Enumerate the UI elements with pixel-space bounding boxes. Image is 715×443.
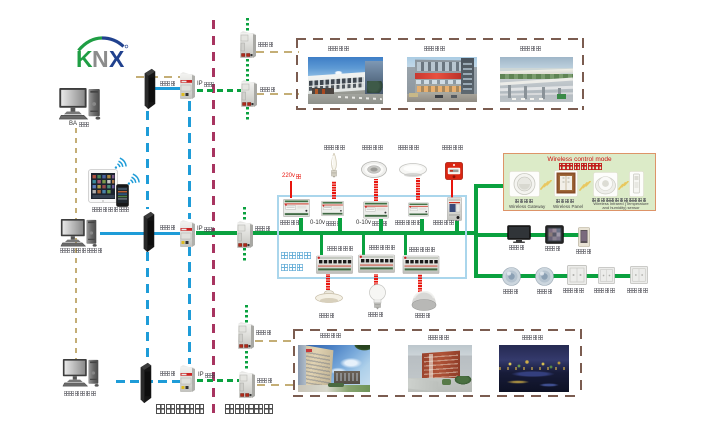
svg-text:N: N (92, 46, 109, 72)
svg-text:K: K (76, 46, 93, 72)
svg-text:X: X (109, 46, 125, 72)
